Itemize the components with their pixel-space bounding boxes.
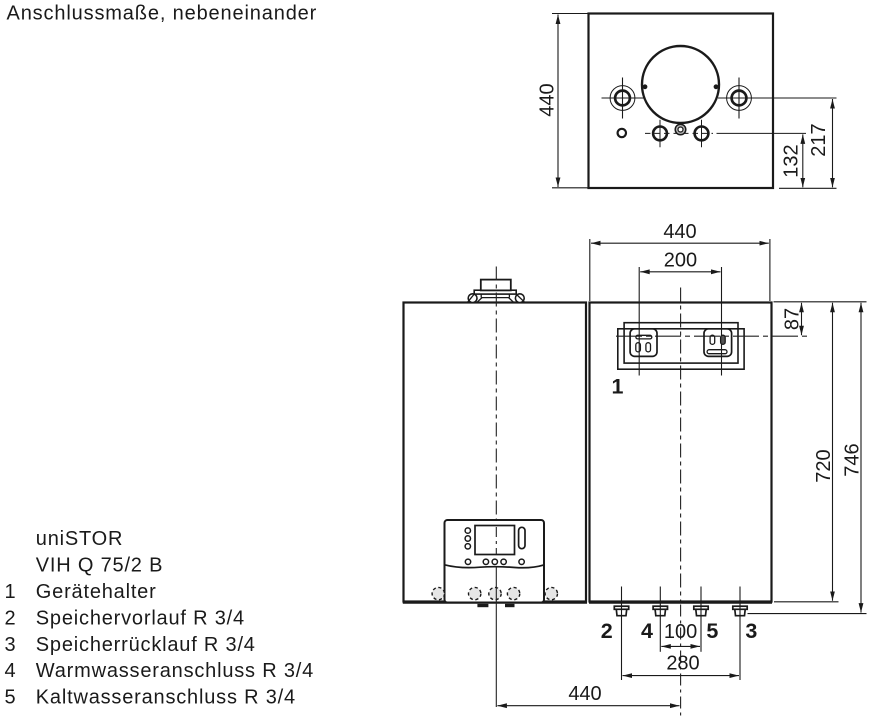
svg-text:VIH Q 75/2 B: VIH Q 75/2 B (36, 555, 163, 577)
svg-text:440: 440 (537, 83, 559, 116)
svg-text:3: 3 (745, 619, 757, 643)
svg-text:100: 100 (664, 621, 697, 643)
svg-text:4: 4 (641, 619, 653, 643)
svg-text:746: 746 (842, 443, 864, 476)
svg-text:2: 2 (5, 607, 17, 629)
svg-text:132: 132 (781, 144, 803, 177)
svg-text:3: 3 (5, 634, 17, 656)
svg-text:5: 5 (5, 687, 17, 709)
svg-text:Warmwasseranschluss R 3/4: Warmwasseranschluss R 3/4 (36, 660, 314, 682)
svg-text:200: 200 (664, 249, 697, 271)
svg-text:87: 87 (781, 308, 803, 330)
svg-text:1: 1 (5, 581, 17, 603)
svg-text:440: 440 (568, 683, 601, 705)
svg-text:Anschlussmaße, nebeneinander: Anschlussmaße, nebeneinander (7, 3, 318, 25)
svg-text:1: 1 (612, 375, 624, 399)
svg-text:Speichervorlauf R 3/4: Speichervorlauf R 3/4 (36, 607, 245, 629)
svg-text:280: 280 (666, 652, 699, 674)
svg-text:217: 217 (808, 123, 830, 156)
svg-text:720: 720 (813, 449, 835, 482)
svg-text:2: 2 (601, 619, 613, 643)
svg-text:4: 4 (5, 660, 17, 682)
svg-text:5: 5 (706, 619, 718, 643)
svg-text:440: 440 (663, 221, 696, 243)
svg-text:Kaltwasseranschluss R 3/4: Kaltwasseranschluss R 3/4 (36, 687, 296, 709)
svg-text:uniSTOR: uniSTOR (36, 528, 124, 550)
svg-text:Speicherrücklauf R 3/4: Speicherrücklauf R 3/4 (36, 634, 256, 656)
svg-text:Gerätehalter: Gerätehalter (36, 581, 157, 603)
